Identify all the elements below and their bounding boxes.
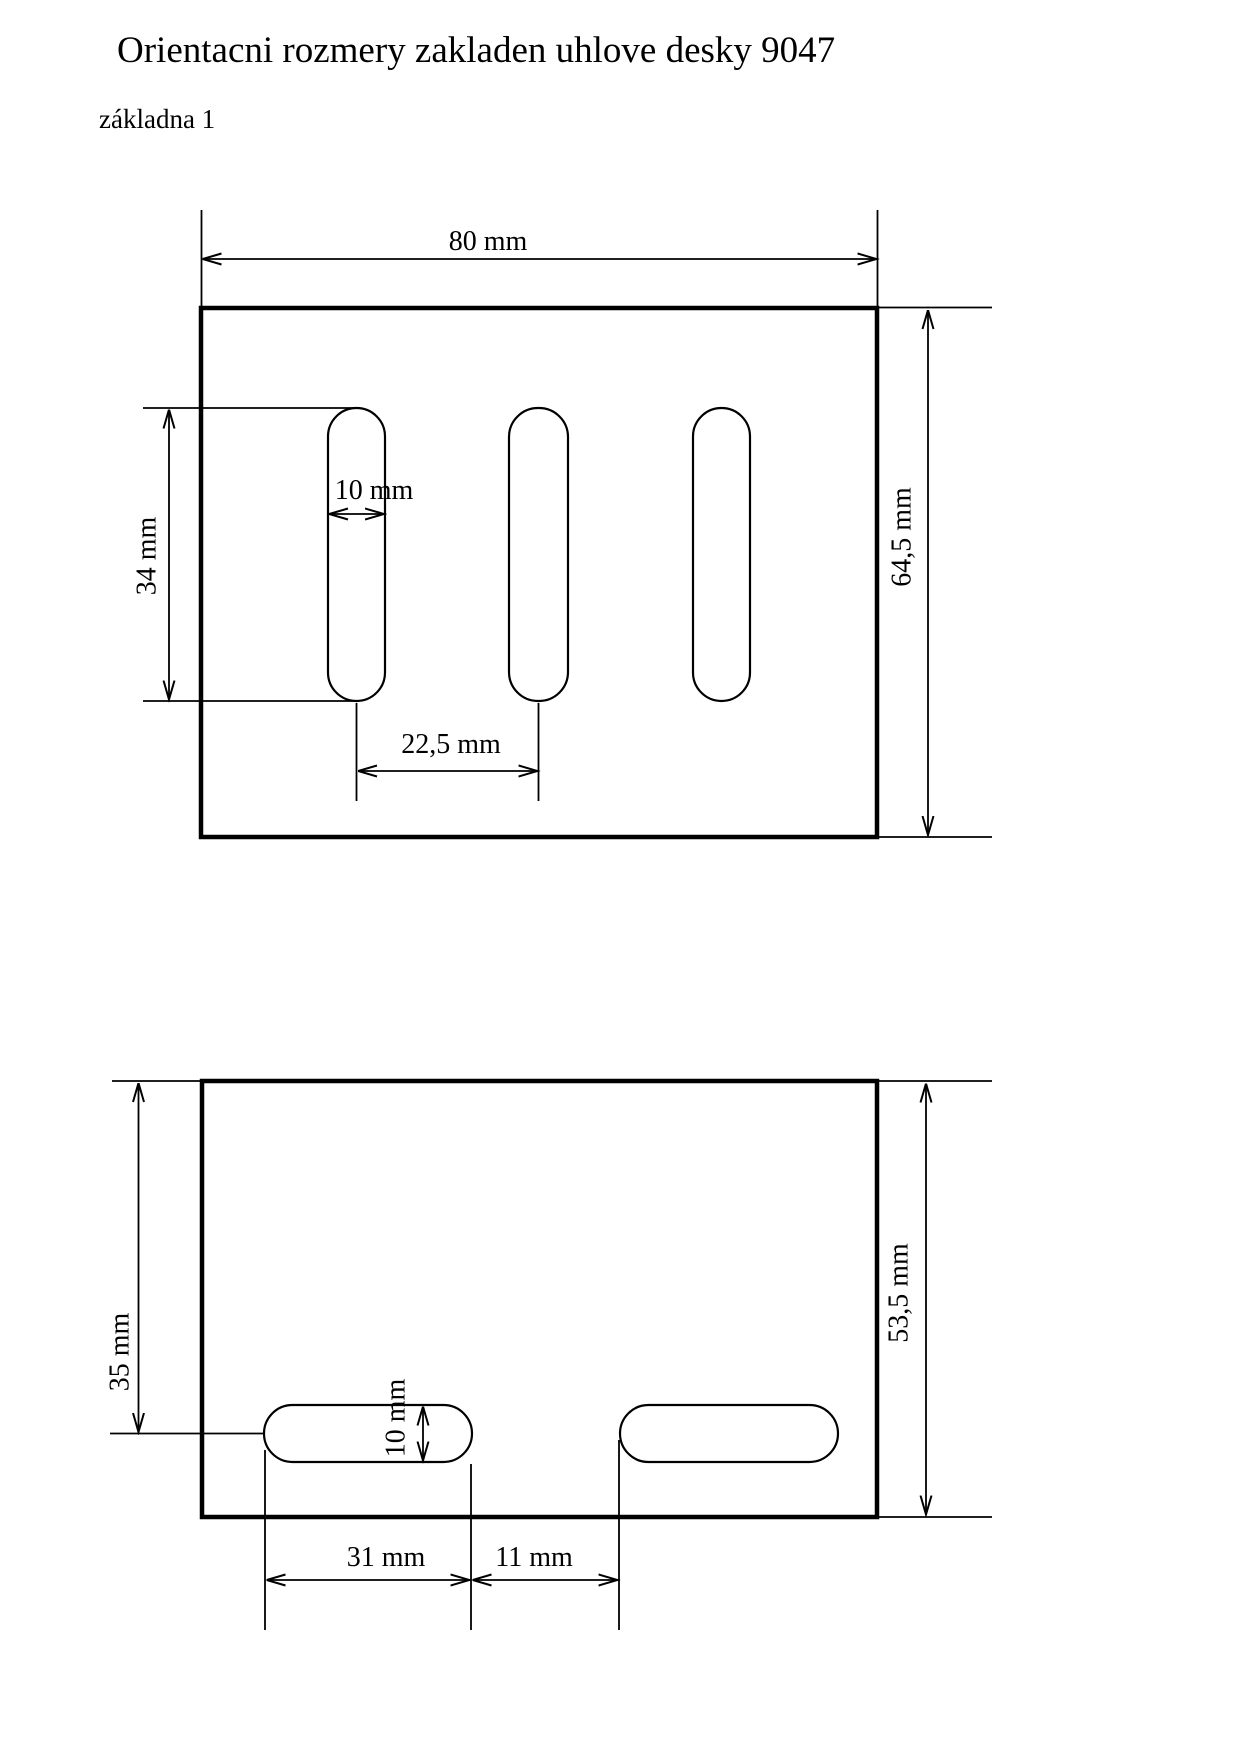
bottom-view: 35 mm 10 mm 53,5 mm 31 mm 11 mm (105, 1081, 993, 1630)
dim-label-width: 80 mm (449, 226, 528, 257)
dim-label-slot-length: 34 mm (132, 517, 163, 596)
dim-label-slot-gap: 11 mm (495, 1542, 573, 1573)
bottom-plate-outline (202, 1081, 877, 1517)
dim-height-64-5: 64,5 mm (879, 308, 992, 838)
dim-slot-height-10: 10 mm (381, 1379, 424, 1461)
bottom-slot-2 (620, 1405, 838, 1462)
dim-label-height: 53,5 mm (884, 1243, 915, 1343)
dim-label-slot-width: 10 mm (335, 475, 414, 506)
dim-label-slot-length: 31 mm (347, 1542, 426, 1573)
dim-slot-length-31: 31 mm (267, 1542, 470, 1580)
dim-slot-length-34: 34 mm (132, 408, 357, 701)
top-slot-1 (328, 408, 385, 701)
drawing-canvas: Orientacni rozmery zakladen uhlove desky… (0, 0, 1240, 1754)
base-label: základna 1 (99, 104, 215, 134)
dim-height-53-5: 53,5 mm (879, 1081, 992, 1517)
dim-slot-spacing-22-5: 22,5 mm (357, 703, 539, 801)
dim-width-80: 80 mm (202, 210, 878, 306)
top-slot-3 (693, 408, 750, 701)
page-title: Orientacni rozmery zakladen uhlove desky… (117, 30, 835, 71)
dim-label-height: 64,5 mm (887, 487, 918, 587)
dim-slot-gap-11: 11 mm (473, 1542, 618, 1580)
top-slot-2 (509, 408, 568, 701)
bottom-slot-1 (264, 1405, 472, 1462)
dim-label-edge-to-slot: 35 mm (105, 1313, 136, 1392)
top-view: 80 mm 10 mm 34 mm 22,5 mm 64,5 mm (132, 210, 993, 837)
dim-label-slot-height: 10 mm (381, 1379, 412, 1458)
dim-label-slot-spacing: 22,5 mm (401, 729, 501, 760)
dim-edge-to-slot-35: 35 mm (105, 1081, 265, 1434)
dim-slot-width-10: 10 mm (329, 475, 413, 514)
